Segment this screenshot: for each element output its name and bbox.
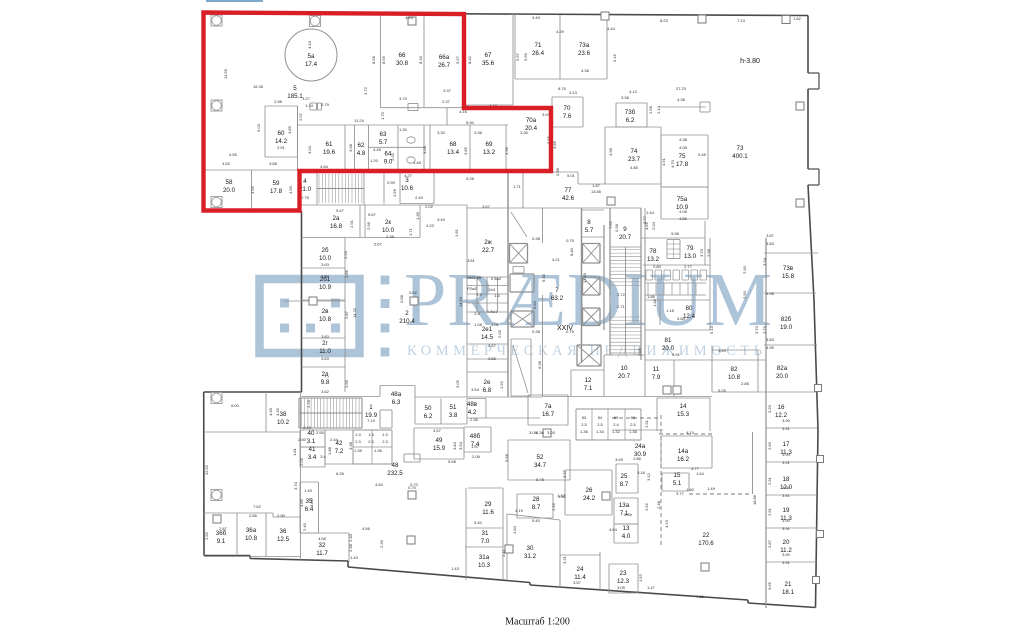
svg-text:3.38: 3.38 <box>386 234 395 239</box>
svg-text:2.86: 2.86 <box>249 513 258 518</box>
svg-text:2г: 2г <box>322 340 328 347</box>
svg-text:12: 12 <box>585 377 592 384</box>
svg-text:3.49: 3.49 <box>615 457 624 462</box>
svg-text:58: 58 <box>226 179 233 186</box>
svg-text:1.86: 1.86 <box>647 294 656 299</box>
svg-text:3.38: 3.38 <box>348 441 353 450</box>
svg-text:11.0: 11.0 <box>319 348 331 355</box>
svg-text:4.56: 4.56 <box>679 216 688 221</box>
svg-text:3.49: 3.49 <box>437 217 446 222</box>
svg-text:4.30: 4.30 <box>268 407 273 416</box>
svg-text:63: 63 <box>380 131 387 138</box>
svg-text:5: 5 <box>293 85 297 92</box>
svg-text:3.27: 3.27 <box>302 96 311 101</box>
svg-text:10.9: 10.9 <box>319 284 332 291</box>
svg-text:10: 10 <box>621 365 628 372</box>
svg-text:4: 4 <box>303 178 307 185</box>
svg-text:2.14: 2.14 <box>656 105 661 114</box>
svg-text:4.19: 4.19 <box>515 508 524 513</box>
svg-text:4.98: 4.98 <box>766 291 775 296</box>
svg-text:3.70: 3.70 <box>699 248 704 257</box>
svg-text:210.4: 210.4 <box>399 318 415 325</box>
svg-text:3.62: 3.62 <box>321 389 330 394</box>
svg-text:3.70: 3.70 <box>293 481 298 490</box>
svg-text:7.0: 7.0 <box>481 538 490 545</box>
svg-text:26: 26 <box>586 487 593 494</box>
svg-text:6.2: 6.2 <box>424 413 433 420</box>
svg-text:1.75: 1.75 <box>380 111 385 120</box>
svg-text:40: 40 <box>308 430 315 437</box>
svg-text:2.90: 2.90 <box>742 290 747 299</box>
svg-text:8.33: 8.33 <box>418 55 423 64</box>
svg-text:5.1: 5.1 <box>673 480 682 487</box>
svg-text:3.64: 3.64 <box>458 441 463 450</box>
svg-text:3.87: 3.87 <box>766 233 775 238</box>
svg-text:3.77: 3.77 <box>676 491 685 496</box>
svg-text:5.25: 5.25 <box>718 388 727 393</box>
svg-text:1.35: 1.35 <box>354 448 363 453</box>
svg-text:0.38: 0.38 <box>532 329 541 334</box>
svg-text:2.48: 2.48 <box>656 500 661 509</box>
svg-text:4.70: 4.70 <box>670 159 675 168</box>
svg-text:23: 23 <box>620 570 627 577</box>
svg-text:1.52: 1.52 <box>638 573 643 582</box>
svg-text:2.96: 2.96 <box>366 221 371 230</box>
svg-text:4.74: 4.74 <box>686 430 695 435</box>
svg-text:24a: 24a <box>635 443 646 450</box>
svg-text:60: 60 <box>278 130 285 137</box>
svg-text:9.1: 9.1 <box>217 538 226 545</box>
svg-text:2.91: 2.91 <box>767 476 772 485</box>
svg-text:14.5: 14.5 <box>481 334 494 341</box>
svg-text:20.0: 20.0 <box>662 345 675 352</box>
svg-text:5.65: 5.65 <box>523 52 528 61</box>
svg-text:2.96: 2.96 <box>344 379 349 388</box>
svg-text:75: 75 <box>679 153 686 160</box>
svg-text:2в: 2в <box>322 308 329 315</box>
svg-text:170.6: 170.6 <box>698 540 714 547</box>
svg-text:1.34: 1.34 <box>596 429 605 434</box>
svg-text:2.90: 2.90 <box>767 441 772 450</box>
svg-text:23.7: 23.7 <box>628 156 641 163</box>
svg-text:3.30: 3.30 <box>520 130 529 135</box>
svg-text:1.9: 1.9 <box>476 292 482 297</box>
svg-text:7.13: 7.13 <box>737 18 746 23</box>
svg-text:2и61.98: 2и61.98 <box>467 275 482 280</box>
svg-text:6.08: 6.08 <box>537 360 542 369</box>
svg-text:21: 21 <box>785 581 792 588</box>
svg-text:1.36: 1.36 <box>629 429 638 434</box>
svg-text:5.40: 5.40 <box>532 518 541 523</box>
svg-text:13.2: 13.2 <box>647 256 660 263</box>
svg-text:7.52: 7.52 <box>253 504 262 509</box>
svg-text:1.3: 1.3 <box>355 432 361 437</box>
svg-text:4.84: 4.84 <box>309 498 314 507</box>
svg-text:8.7: 8.7 <box>620 481 629 488</box>
svg-text:2.92: 2.92 <box>204 531 209 540</box>
svg-text:16.35: 16.35 <box>253 84 264 89</box>
svg-text:3.90: 3.90 <box>782 485 791 490</box>
svg-text:3.16: 3.16 <box>637 470 646 475</box>
svg-text:1.92: 1.92 <box>499 380 504 389</box>
svg-text:3.70: 3.70 <box>399 96 408 101</box>
svg-text:2.91: 2.91 <box>349 219 354 228</box>
svg-text:68: 68 <box>450 141 457 148</box>
svg-text:73a: 73a <box>579 42 590 49</box>
svg-text:4.59: 4.59 <box>288 185 293 194</box>
svg-text:0.90: 0.90 <box>387 180 396 185</box>
svg-text:5.15: 5.15 <box>612 53 617 62</box>
svg-text:54: 54 <box>598 415 603 420</box>
svg-text:0.75: 0.75 <box>566 329 575 334</box>
svg-text:1.36: 1.36 <box>580 429 589 434</box>
svg-text:4.56: 4.56 <box>318 536 327 541</box>
svg-text:18: 18 <box>783 476 790 483</box>
svg-text:2.4: 2.4 <box>613 422 619 427</box>
svg-text:2.02: 2.02 <box>390 152 395 161</box>
svg-text:6.50: 6.50 <box>532 300 537 309</box>
svg-text:4.36: 4.36 <box>581 68 590 73</box>
svg-text:16: 16 <box>778 404 785 411</box>
svg-text:10.8: 10.8 <box>245 535 258 542</box>
svg-text:17.8: 17.8 <box>270 188 283 195</box>
svg-text:3.90: 3.90 <box>782 518 791 523</box>
svg-text:66a: 66a <box>439 54 450 61</box>
svg-text:74: 74 <box>631 148 638 155</box>
svg-text:2.85: 2.85 <box>624 512 633 517</box>
svg-text:4.08: 4.08 <box>679 145 688 150</box>
svg-text:1.49: 1.49 <box>304 488 313 493</box>
svg-text:48: 48 <box>392 462 399 469</box>
svg-text:4.44: 4.44 <box>607 26 616 31</box>
svg-text:3.54: 3.54 <box>471 387 480 392</box>
svg-text:4.23: 4.23 <box>426 223 435 228</box>
svg-text:3.90: 3.90 <box>782 418 791 423</box>
svg-text:0.38: 0.38 <box>532 236 541 241</box>
svg-text:0.70: 0.70 <box>408 485 417 490</box>
svg-text:2.3: 2.3 <box>355 439 361 444</box>
svg-text:5.7: 5.7 <box>585 227 594 234</box>
svg-text:7.9: 7.9 <box>652 374 661 381</box>
svg-text:3.08: 3.08 <box>529 430 538 435</box>
svg-text:35.6: 35.6 <box>482 60 495 67</box>
svg-text:7.2: 7.2 <box>335 448 344 455</box>
svg-text:2.62: 2.62 <box>644 502 649 511</box>
svg-text:26.7: 26.7 <box>438 62 451 69</box>
svg-text:3.90: 3.90 <box>782 452 791 457</box>
svg-text:2a: 2a <box>333 215 340 222</box>
svg-text:82б: 82б <box>781 316 792 323</box>
svg-text:2.37: 2.37 <box>442 99 451 104</box>
svg-text:h-3.80: h-3.80 <box>740 58 760 65</box>
svg-text:56: 56 <box>631 415 636 420</box>
svg-text:27.23: 27.23 <box>676 86 687 91</box>
svg-text:1.84: 1.84 <box>512 525 517 534</box>
svg-text:36a: 36a <box>246 527 257 534</box>
svg-text:67: 67 <box>485 52 492 59</box>
svg-text:3.83: 3.83 <box>766 337 775 342</box>
svg-text:8.56: 8.56 <box>381 55 386 64</box>
svg-text:2.5: 2.5 <box>581 422 587 427</box>
svg-text:2.87: 2.87 <box>767 539 772 548</box>
svg-text:5.7: 5.7 <box>379 139 388 146</box>
svg-text:15.8: 15.8 <box>782 273 795 280</box>
svg-text:3.03: 3.03 <box>547 430 556 435</box>
svg-text:3.91: 3.91 <box>782 426 791 431</box>
svg-text:73в: 73в <box>783 265 794 272</box>
svg-text:3.49: 3.49 <box>718 348 727 353</box>
svg-text:16.8: 16.8 <box>330 223 343 230</box>
svg-text:1.64: 1.64 <box>696 471 705 476</box>
svg-text:36б: 36б <box>216 530 227 537</box>
svg-text:77: 77 <box>565 187 572 194</box>
svg-text:1.61: 1.61 <box>454 228 459 237</box>
svg-text:7.36: 7.36 <box>696 594 705 599</box>
svg-text:11.24: 11.24 <box>354 118 364 123</box>
svg-text:4.21: 4.21 <box>552 257 561 262</box>
svg-text:2.40: 2.40 <box>415 195 424 200</box>
svg-text:5.55: 5.55 <box>229 152 238 157</box>
svg-text:4.91: 4.91 <box>661 157 666 166</box>
svg-text:1: 1 <box>369 404 373 411</box>
svg-text:30: 30 <box>527 545 534 552</box>
svg-text:2д: 2д <box>321 371 328 378</box>
svg-text:1.32: 1.32 <box>612 429 621 434</box>
svg-text:6.2: 6.2 <box>626 117 635 124</box>
svg-text:34.7: 34.7 <box>534 462 547 469</box>
svg-text:2.03: 2.03 <box>299 457 304 466</box>
svg-text:3.90: 3.90 <box>782 552 791 557</box>
svg-text:3.05: 3.05 <box>617 585 626 590</box>
svg-text:5.58: 5.58 <box>448 459 457 464</box>
svg-text:29: 29 <box>485 501 492 508</box>
svg-text:4.59: 4.59 <box>250 185 255 194</box>
svg-text:1.88: 1.88 <box>327 446 332 455</box>
svg-text:1.14: 1.14 <box>305 103 314 108</box>
svg-text:17.4: 17.4 <box>305 61 318 68</box>
svg-text:3.63: 3.63 <box>321 262 330 267</box>
svg-text:8.7: 8.7 <box>532 504 541 511</box>
svg-text:9.8: 9.8 <box>321 379 330 386</box>
svg-text:4.12: 4.12 <box>629 89 638 94</box>
svg-text:1.36: 1.36 <box>374 448 383 453</box>
svg-text:5.67: 5.67 <box>515 52 520 61</box>
svg-text:1.71: 1.71 <box>513 184 522 189</box>
svg-text:5.01: 5.01 <box>567 173 576 178</box>
svg-text:6.39: 6.39 <box>336 471 345 476</box>
svg-text:2.06: 2.06 <box>472 454 481 459</box>
svg-text:2.40: 2.40 <box>348 533 353 542</box>
svg-text:48б: 48б <box>470 433 481 440</box>
svg-text:14.53: 14.53 <box>458 296 463 307</box>
svg-text:16.7: 16.7 <box>542 411 555 418</box>
svg-text:3.81: 3.81 <box>467 258 476 263</box>
svg-text:25: 25 <box>621 473 628 480</box>
svg-text:2.50: 2.50 <box>298 437 307 442</box>
svg-text:8.23: 8.23 <box>660 18 669 23</box>
svg-text:1.3: 1.3 <box>382 432 388 437</box>
svg-text:7.75: 7.75 <box>301 195 310 200</box>
svg-text:66: 66 <box>399 52 406 59</box>
svg-text:3.72: 3.72 <box>363 86 368 95</box>
svg-text:4.99: 4.99 <box>766 345 775 350</box>
svg-text:28: 28 <box>533 496 540 503</box>
svg-text:6.36: 6.36 <box>536 430 545 435</box>
svg-text:14.22: 14.22 <box>352 307 357 318</box>
svg-text:2.87: 2.87 <box>219 526 228 531</box>
svg-text:49: 49 <box>436 437 443 444</box>
svg-text:4.57: 4.57 <box>433 428 442 433</box>
svg-text:2.58: 2.58 <box>648 105 653 114</box>
svg-text:1.3: 1.3 <box>368 432 374 437</box>
svg-text:4.45: 4.45 <box>373 147 382 152</box>
svg-text:48в: 48в <box>467 401 478 408</box>
svg-text:13.85: 13.85 <box>591 189 602 194</box>
svg-text:5.13: 5.13 <box>709 325 714 334</box>
svg-text:1.20: 1.20 <box>370 158 379 163</box>
svg-text:3.36: 3.36 <box>474 130 483 135</box>
svg-text:42.6: 42.6 <box>562 195 575 202</box>
svg-text:2.04: 2.04 <box>651 221 656 230</box>
svg-text:69: 69 <box>486 141 493 148</box>
svg-text:4.23: 4.23 <box>664 519 669 528</box>
svg-text:7.62: 7.62 <box>608 220 613 229</box>
svg-text:1.42: 1.42 <box>558 494 567 499</box>
svg-text:2.87: 2.87 <box>344 310 349 319</box>
svg-text:2х3: 2х3 <box>489 287 496 292</box>
svg-text:3.83: 3.83 <box>321 334 330 339</box>
svg-text:3.94: 3.94 <box>762 257 767 266</box>
svg-text:1.43: 1.43 <box>451 566 460 571</box>
svg-text:4.56: 4.56 <box>362 526 371 531</box>
svg-text:2.78: 2.78 <box>306 399 311 408</box>
svg-text:4.8: 4.8 <box>357 150 366 157</box>
svg-text:0.9ж2: 0.9ж2 <box>491 276 502 281</box>
svg-text:9: 9 <box>623 226 627 233</box>
svg-text:2.99: 2.99 <box>637 347 642 356</box>
svg-text:4.08: 4.08 <box>422 145 427 154</box>
svg-text:2к: 2к <box>385 219 391 226</box>
svg-text:2.91: 2.91 <box>767 507 772 516</box>
svg-text:31a: 31a <box>479 554 490 561</box>
svg-text:17.8: 17.8 <box>676 161 689 168</box>
svg-text:2.77: 2.77 <box>684 264 693 269</box>
svg-text:3.20: 3.20 <box>767 404 772 413</box>
svg-text:81: 81 <box>665 337 672 344</box>
svg-text:15.3: 15.3 <box>677 411 690 418</box>
svg-text:24: 24 <box>577 566 584 573</box>
svg-text:3.91: 3.91 <box>782 460 791 465</box>
svg-text:4.38: 4.38 <box>677 97 686 102</box>
svg-text:19.6: 19.6 <box>323 149 336 156</box>
svg-text:3.31: 3.31 <box>562 555 567 564</box>
svg-text:2.39: 2.39 <box>379 539 384 548</box>
svg-text:8.58: 8.58 <box>371 55 376 64</box>
svg-text:59: 59 <box>273 180 280 187</box>
svg-text:4.84: 4.84 <box>320 164 329 169</box>
svg-text:17.43: 17.43 <box>582 272 587 283</box>
svg-text:9.57: 9.57 <box>455 55 460 64</box>
svg-text:2.80: 2.80 <box>653 264 662 269</box>
svg-text:3.12: 3.12 <box>646 472 651 481</box>
svg-text:52: 52 <box>537 454 544 461</box>
svg-text:2.4: 2.4 <box>474 311 480 316</box>
svg-text:3.96: 3.96 <box>504 146 509 155</box>
svg-text:3.84: 3.84 <box>321 274 330 279</box>
svg-text:1.08: 1.08 <box>491 322 500 327</box>
svg-text:22.7: 22.7 <box>482 247 495 254</box>
svg-text:70: 70 <box>564 105 571 112</box>
svg-text:78: 78 <box>650 248 657 255</box>
svg-text:1.60: 1.60 <box>686 487 695 492</box>
svg-text:6.00: 6.00 <box>231 403 240 408</box>
svg-text:11.6: 11.6 <box>482 509 494 516</box>
svg-text:6.58: 6.58 <box>504 453 509 462</box>
svg-text:3.37: 3.37 <box>443 88 452 93</box>
svg-text:19: 19 <box>783 507 790 514</box>
svg-text:1.56: 1.56 <box>392 188 397 197</box>
svg-text:4.49: 4.49 <box>532 15 541 20</box>
svg-text:26.4: 26.4 <box>532 50 545 57</box>
svg-text:3.91: 3.91 <box>782 560 791 565</box>
svg-text:2.03: 2.03 <box>497 329 502 338</box>
svg-text:0.98: 0.98 <box>555 167 560 176</box>
svg-text:55: 55 <box>614 415 619 420</box>
svg-text:3.8: 3.8 <box>449 412 458 419</box>
svg-text:2.98: 2.98 <box>274 99 283 104</box>
svg-text:8.76: 8.76 <box>558 86 567 91</box>
svg-text:18.1: 18.1 <box>782 589 795 596</box>
svg-text:2.86: 2.86 <box>633 456 642 461</box>
svg-text:0.79: 0.79 <box>321 102 330 107</box>
svg-text:41: 41 <box>309 446 316 453</box>
svg-text:4.64: 4.64 <box>609 527 618 532</box>
svg-text:1.97: 1.97 <box>471 444 480 449</box>
svg-text:0.62: 0.62 <box>409 290 418 295</box>
svg-text:14.2: 14.2 <box>275 138 288 145</box>
svg-text:2.38: 2.38 <box>348 543 353 552</box>
svg-text:5.91: 5.91 <box>672 352 681 357</box>
svg-text:2.91: 2.91 <box>277 145 286 150</box>
svg-text:3.84: 3.84 <box>452 441 457 450</box>
svg-text:4.89: 4.89 <box>287 125 292 134</box>
svg-text:5a: 5a <box>308 53 315 60</box>
svg-text:1.30: 1.30 <box>399 127 408 132</box>
svg-text:3.88: 3.88 <box>269 161 278 166</box>
svg-text:7.19: 7.19 <box>367 418 376 423</box>
svg-text:30.8: 30.8 <box>396 60 409 67</box>
svg-text:4.35: 4.35 <box>275 407 280 416</box>
svg-text:10.8: 10.8 <box>728 374 741 381</box>
svg-text:20: 20 <box>783 539 790 546</box>
svg-text:7a: 7a <box>545 403 552 410</box>
svg-text:3.4: 3.4 <box>308 454 317 461</box>
svg-text:3.83: 3.83 <box>766 241 775 246</box>
svg-text:1.35: 1.35 <box>415 211 420 220</box>
svg-text:2.71: 2.71 <box>617 304 626 309</box>
svg-text:3.79: 3.79 <box>762 325 767 334</box>
svg-text:0.38: 0.38 <box>614 223 619 232</box>
svg-text:185.1: 185.1 <box>287 93 303 100</box>
svg-text:2.07: 2.07 <box>298 112 303 121</box>
svg-text:1.08: 1.08 <box>474 322 483 327</box>
svg-text:62: 62 <box>358 142 365 149</box>
svg-text:3.57: 3.57 <box>573 580 582 585</box>
svg-text:20.7: 20.7 <box>618 373 631 380</box>
svg-text:3.63: 3.63 <box>321 356 330 361</box>
svg-text:3.36: 3.36 <box>621 95 630 100</box>
svg-text:3.30: 3.30 <box>437 130 446 135</box>
